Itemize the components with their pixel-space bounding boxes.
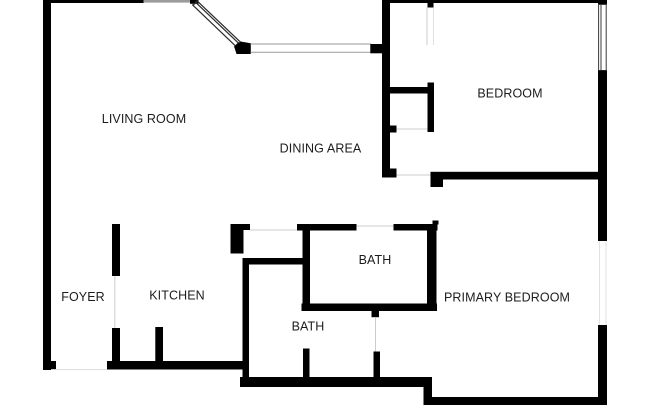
svg-text:FOYER: FOYER	[61, 290, 105, 304]
svg-text:BATH: BATH	[292, 319, 325, 333]
svg-text:PRIMARY BEDROOM: PRIMARY BEDROOM	[444, 290, 570, 304]
svg-text:LIVING ROOM: LIVING ROOM	[102, 112, 186, 126]
svg-text:DINING AREA: DINING AREA	[280, 142, 362, 156]
svg-text:KITCHEN: KITCHEN	[149, 289, 205, 303]
svg-text:BEDROOM: BEDROOM	[477, 86, 542, 100]
svg-text:BATH: BATH	[359, 253, 392, 267]
